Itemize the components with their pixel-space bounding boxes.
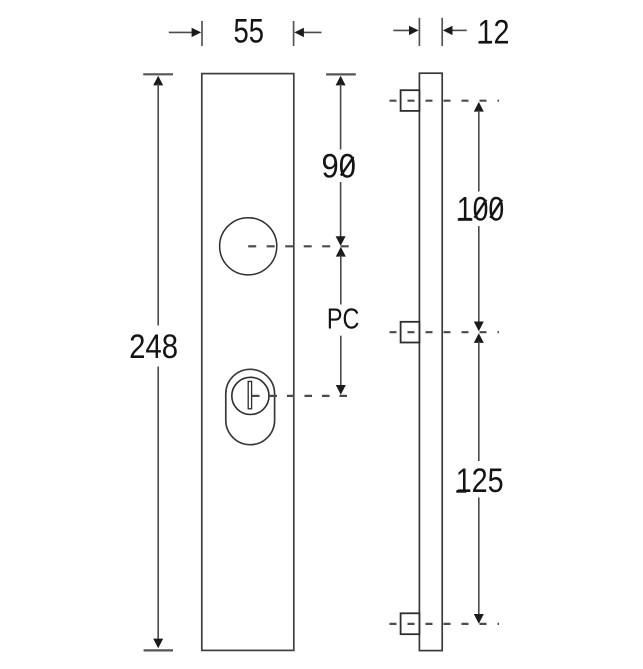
svg-text:PC: PC [327,304,360,336]
svg-text:248: 248 [129,328,178,366]
svg-text:55: 55 [234,12,265,50]
svg-text:125: 125 [456,462,504,500]
svg-text:90: 90 [321,147,356,185]
svg-text:12: 12 [478,14,510,52]
